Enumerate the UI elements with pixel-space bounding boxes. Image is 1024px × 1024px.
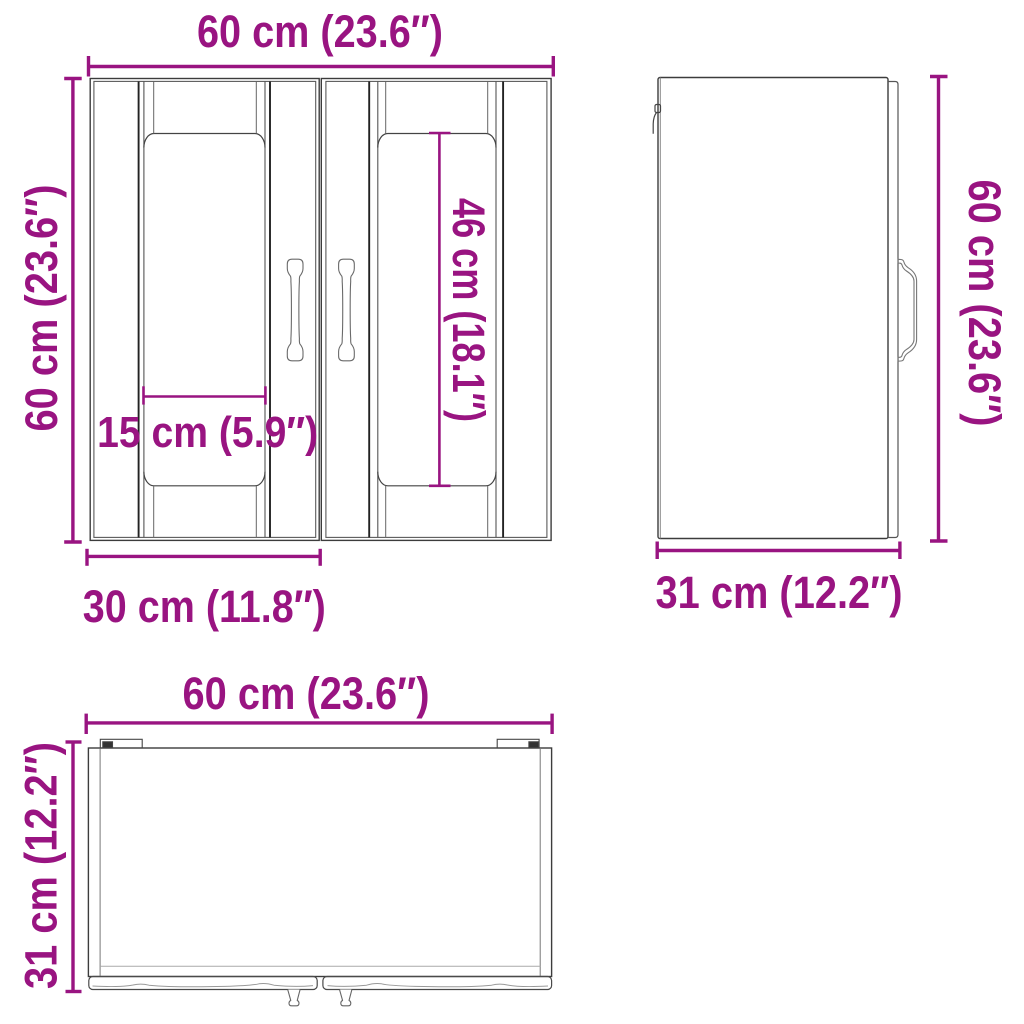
svg-text:30 cm (11.8″): 30 cm (11.8″) [83, 581, 326, 632]
svg-text:46 cm (18.1″): 46 cm (18.1″) [443, 198, 494, 422]
svg-text:60 cm (23.6″): 60 cm (23.6″) [959, 180, 1010, 427]
svg-text:31 cm (12.2″): 31 cm (12.2″) [16, 742, 67, 989]
svg-text:31 cm (12.2″): 31 cm (12.2″) [656, 567, 903, 618]
svg-text:60 cm (23.6″): 60 cm (23.6″) [183, 668, 430, 719]
svg-text:60 cm (23.6″): 60 cm (23.6″) [197, 6, 443, 57]
svg-text:60 cm (23.6″): 60 cm (23.6″) [16, 185, 67, 432]
svg-text:15 cm (5.9″): 15 cm (5.9″) [97, 408, 318, 457]
